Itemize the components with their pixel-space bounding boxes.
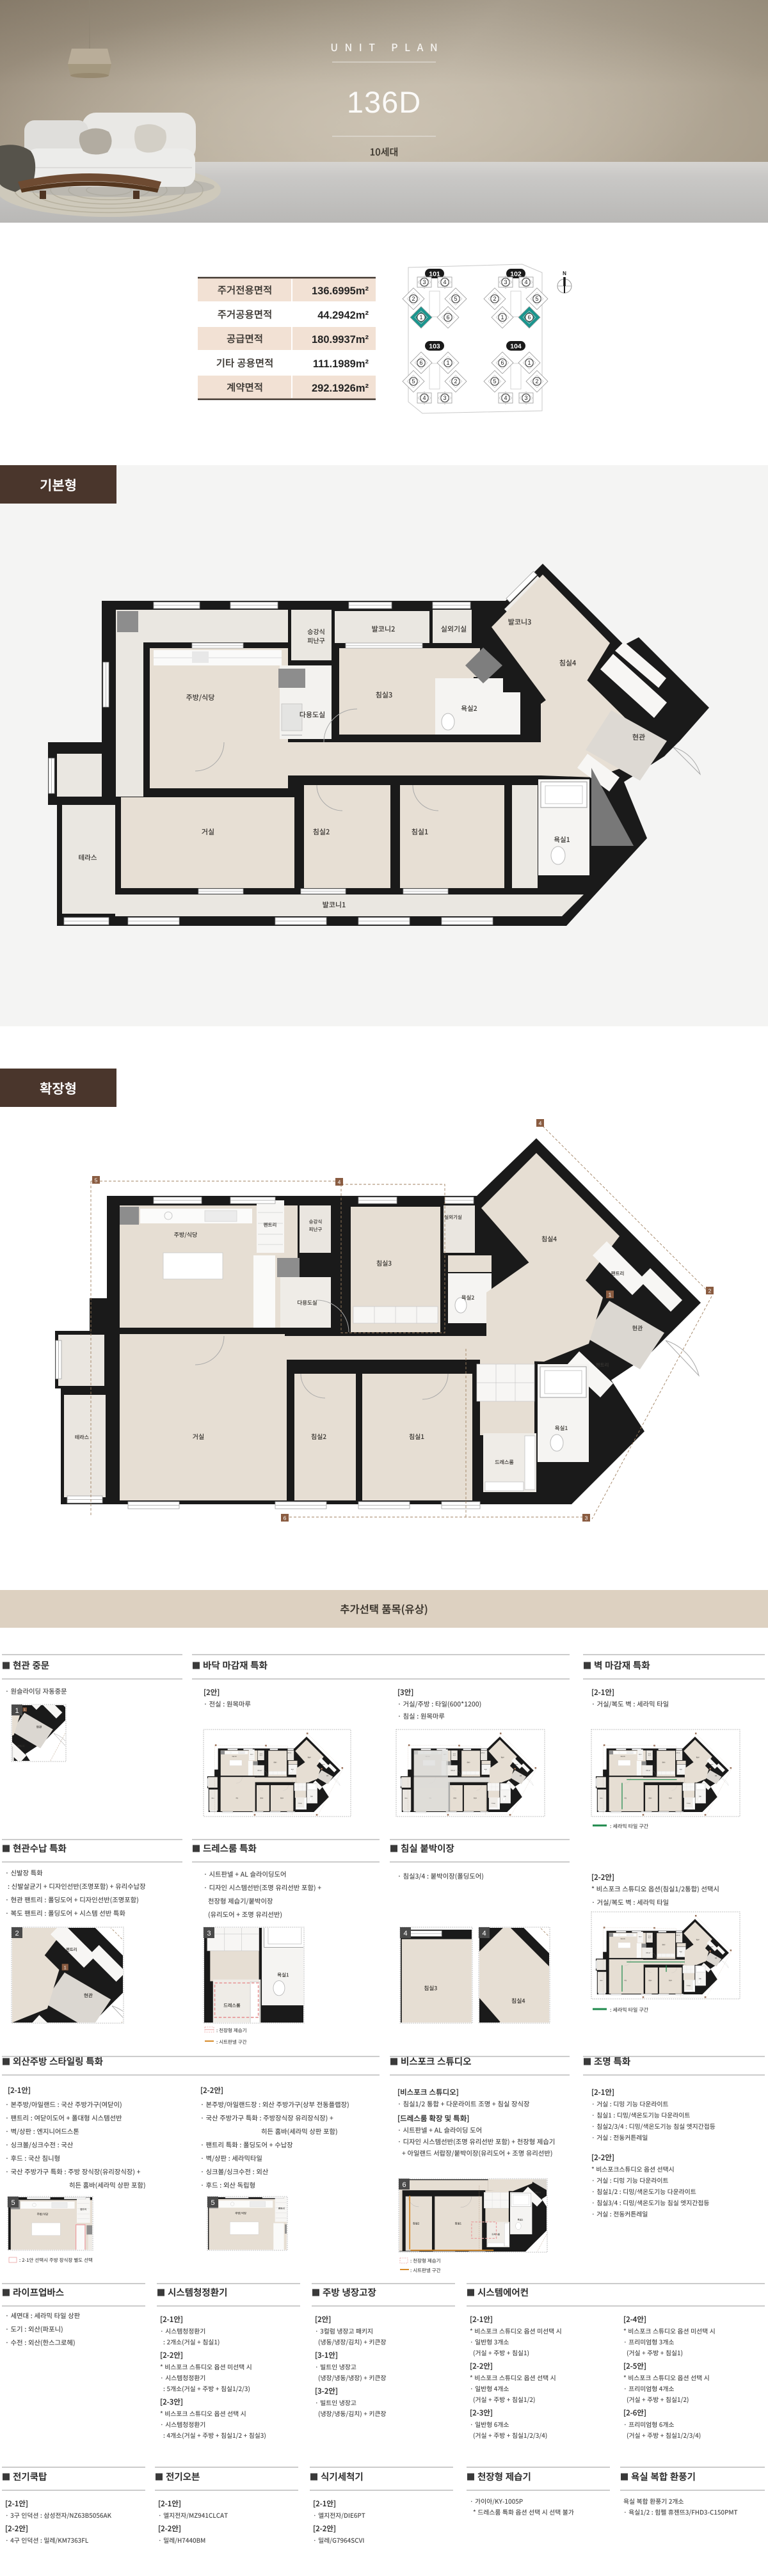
svg-text:5: 5 <box>454 296 457 302</box>
svg-text:104: 104 <box>510 343 522 351</box>
svg-text:136D: 136D <box>347 85 421 119</box>
svg-text:103: 103 <box>429 343 440 351</box>
svg-text:2: 2 <box>412 296 415 302</box>
svg-text:4: 4 <box>482 1930 486 1937</box>
svg-text:6: 6 <box>419 360 422 366</box>
svg-text:3: 3 <box>504 279 507 285</box>
svg-text:3: 3 <box>207 1930 211 1937</box>
svg-text:3: 3 <box>422 279 426 285</box>
svg-text:1: 1 <box>500 314 504 321</box>
svg-text:1: 1 <box>527 360 531 366</box>
svg-text:6: 6 <box>527 314 531 321</box>
svg-text:4: 4 <box>524 279 527 285</box>
svg-text:6: 6 <box>500 360 504 366</box>
svg-text:136.6995m²: 136.6995m² <box>312 285 369 297</box>
svg-text:5: 5 <box>11 2199 15 2207</box>
svg-text:2: 2 <box>493 296 496 302</box>
svg-text:4: 4 <box>403 1930 407 1937</box>
svg-text:1: 1 <box>15 1707 19 1715</box>
svg-text:4: 4 <box>443 279 446 285</box>
svg-text:2: 2 <box>535 378 538 385</box>
svg-text:111.1989m²: 111.1989m² <box>313 358 369 370</box>
svg-text:5: 5 <box>211 2199 214 2207</box>
svg-text:3: 3 <box>443 395 446 401</box>
svg-text:4: 4 <box>422 395 426 401</box>
svg-text:N: N <box>563 271 566 276</box>
svg-text:5: 5 <box>535 296 538 302</box>
svg-text:2: 2 <box>454 378 457 385</box>
svg-text:2: 2 <box>15 1930 19 1937</box>
svg-text:180.9937m²: 180.9937m² <box>312 334 369 346</box>
svg-text:44.2942m²: 44.2942m² <box>317 310 369 321</box>
svg-text:5: 5 <box>412 378 415 385</box>
svg-text:4: 4 <box>504 395 507 401</box>
svg-text:6: 6 <box>446 314 449 321</box>
svg-text:6: 6 <box>402 2181 406 2189</box>
svg-text:1: 1 <box>419 314 422 321</box>
svg-text:292.1926m²: 292.1926m² <box>312 383 369 394</box>
svg-text:3: 3 <box>524 395 527 401</box>
svg-text:1: 1 <box>446 360 449 366</box>
svg-text:5: 5 <box>493 378 496 385</box>
